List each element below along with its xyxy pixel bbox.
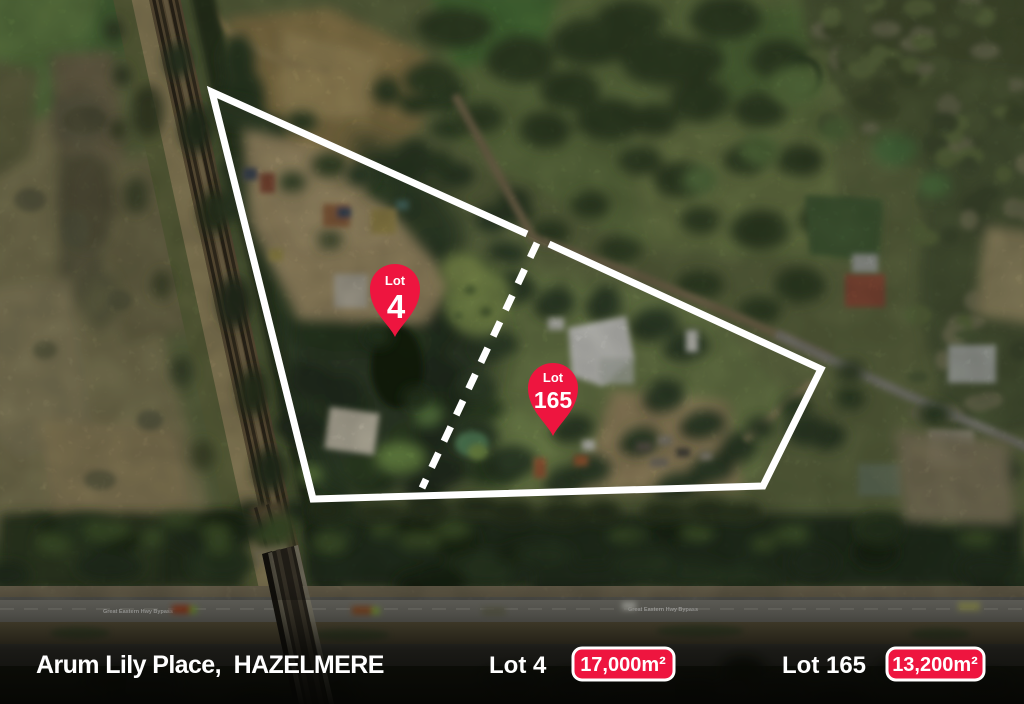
svg-text:Lot: Lot [385,273,406,288]
svg-text:Lot 165: Lot 165 [782,652,866,679]
svg-text:17,000m²: 17,000m² [580,654,666,676]
svg-text:Arum Lily Place, HAZELMERE: Arum Lily Place, HAZELMERE [36,651,384,679]
svg-text:Lot: Lot [543,370,564,385]
svg-text:165: 165 [534,387,573,413]
svg-text:13,200m²: 13,200m² [892,654,978,676]
svg-text:4: 4 [387,288,406,325]
svg-text:Lot 4: Lot 4 [489,652,547,679]
